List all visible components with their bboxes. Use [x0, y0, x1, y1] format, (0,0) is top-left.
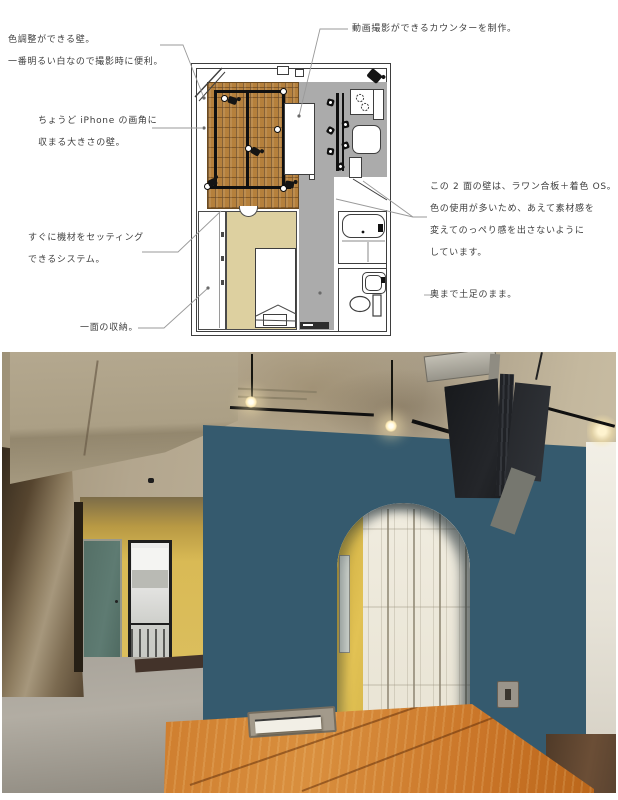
book-in-tray: [255, 715, 322, 734]
annotation-storage: 一面の収納。: [80, 317, 138, 339]
annotation-line: この 2 面の壁は、ラワン合板＋着色 OS。: [430, 176, 617, 198]
annotation-line: しています。: [430, 242, 617, 264]
corridor-ceiling-spotlight: [148, 478, 154, 483]
annotation-line: 色調整ができる壁。: [8, 29, 163, 51]
studio-light-antenna: [535, 352, 543, 380]
annotation-line: ちょうど iPhone の画角に: [38, 110, 157, 132]
annotation-line: 動画撮影ができるカウンターを制作。: [352, 18, 517, 40]
annotation-two-walls: この 2 面の壁は、ラワン合板＋着色 OS。 色の使用が多いため、あえて素材感を…: [430, 176, 617, 264]
annotation-iphone-wall: ちょうど iPhone の画角に 収まる大きさの壁。: [38, 110, 157, 154]
plan-linework: [192, 64, 392, 337]
annotation-line: 一番明るい白なので撮影時に便利。: [8, 51, 163, 73]
floor-plan: [191, 63, 391, 336]
annotation-line: 奥まで土足のまま。: [430, 284, 517, 306]
light-bulb: [385, 420, 397, 432]
door-frame: [74, 502, 83, 672]
annotation-line: すぐに機材をセッティング: [28, 227, 144, 249]
bulb-stem: [391, 360, 393, 424]
door-knob: [115, 600, 118, 603]
floor-plan-section: 色調整ができる壁。 一番明るい白なので撮影時に便利。 動画撮影ができるカウンター…: [0, 0, 618, 350]
annotation-line: 収まる大きさの壁。: [38, 132, 157, 154]
page: 色調整ができる壁。 一番明るい白なので撮影時に便利。 動画撮影ができるカウンター…: [0, 0, 618, 800]
annotation-color-wall: 色調整ができる壁。 一番明るい白なので撮影時に便利。: [8, 29, 163, 73]
interior-photo: [2, 352, 616, 793]
annotation-equipment-system: すぐに機材をセッティング できるシステム。: [28, 227, 144, 271]
annotation-line: 変えてのっぺり感を出さないように: [430, 220, 617, 242]
annotation-line: 色の使用が多いため、あえて素材感を: [430, 198, 617, 220]
annotation-line: 一面の収納。: [80, 317, 138, 339]
annotation-line: できるシステム。: [28, 249, 144, 271]
bulb-stem: [251, 354, 253, 400]
annotation-video-counter: 動画撮影ができるカウンターを制作。: [352, 18, 517, 40]
window-view-building: [132, 548, 168, 588]
right-white-wall: [586, 442, 616, 742]
annotation-doma: 奥まで土足のまま。: [430, 284, 517, 306]
light-bulb: [245, 396, 257, 408]
wall-outlet: [497, 681, 519, 708]
